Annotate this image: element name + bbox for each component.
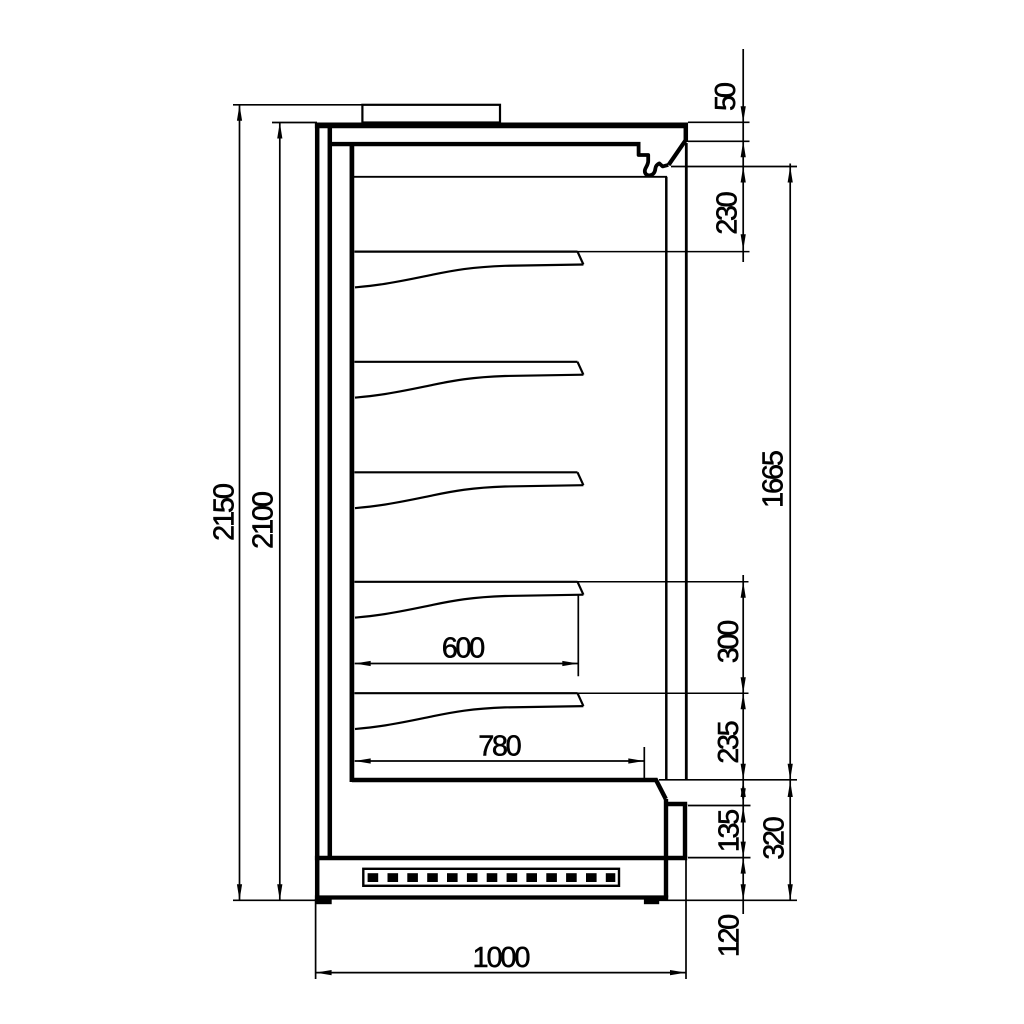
svg-text:135: 135 <box>714 809 746 853</box>
svg-text:120: 120 <box>714 914 746 958</box>
svg-text:235: 235 <box>713 720 745 764</box>
svg-text:2100: 2100 <box>248 491 280 549</box>
svg-text:780: 780 <box>478 731 522 763</box>
svg-text:320: 320 <box>759 816 791 860</box>
svg-text:300: 300 <box>713 620 745 664</box>
svg-text:2150: 2150 <box>209 483 241 541</box>
svg-text:600: 600 <box>442 633 486 665</box>
svg-text:50: 50 <box>710 82 742 111</box>
svg-text:1665: 1665 <box>758 450 790 508</box>
svg-text:1000: 1000 <box>473 942 531 974</box>
svg-text:230: 230 <box>712 191 744 235</box>
